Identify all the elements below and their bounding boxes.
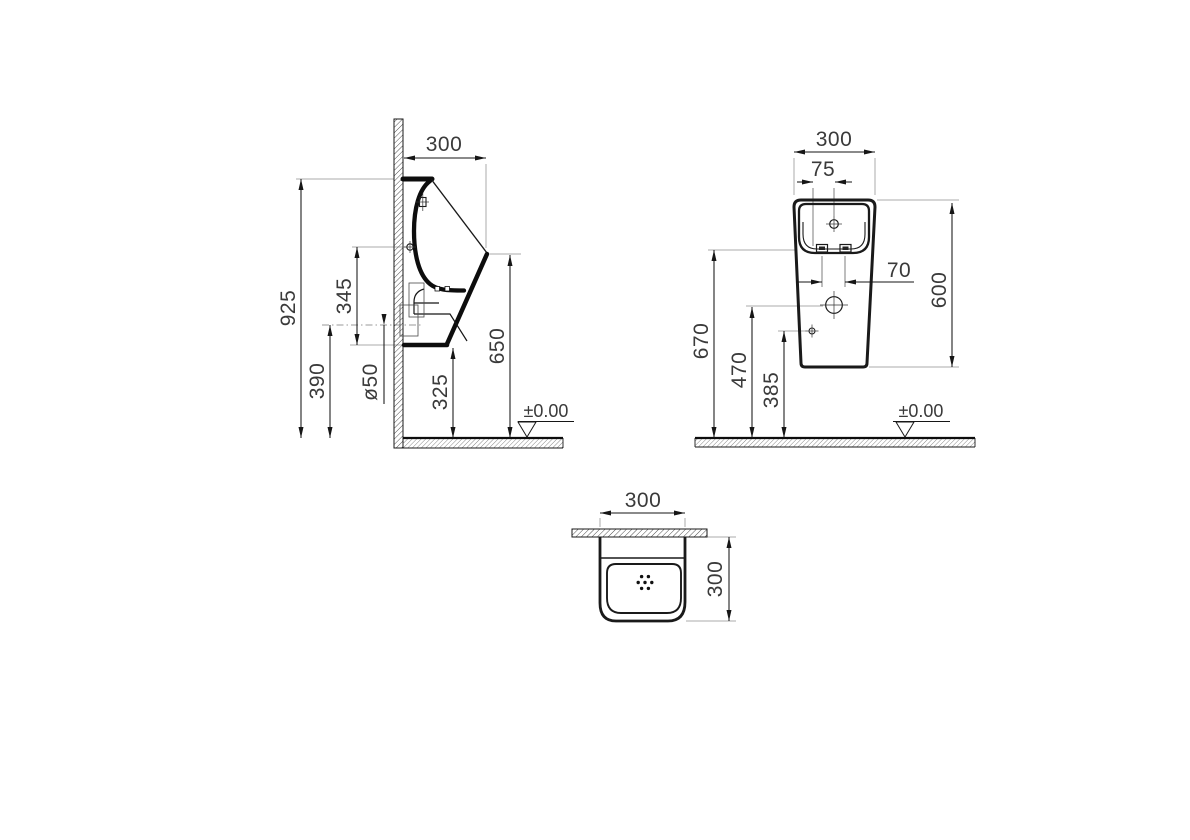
dim-spout-height: 650 xyxy=(486,255,513,438)
datum-level-label: ±0.00 xyxy=(524,401,569,421)
dim-plan-depth: 300 xyxy=(704,537,732,621)
plan-body-outline xyxy=(600,537,685,621)
datum-level-icon xyxy=(896,422,914,437)
wall-section xyxy=(572,529,707,537)
dim-label-front-width: 300 xyxy=(816,128,853,151)
dim-side-depth: 300 xyxy=(404,133,486,161)
dim-label-fixing-height: 670 xyxy=(690,323,713,360)
dim-label-outlet-diameter: ø50 xyxy=(359,363,382,401)
dim-front-width: 300 xyxy=(794,128,875,155)
dim-label-spout-height: 650 xyxy=(486,328,509,365)
urinal-plan-outline xyxy=(600,537,685,621)
lower-front-section xyxy=(447,254,487,344)
drain-crosshair-icon xyxy=(820,291,848,319)
dim-outlet-diameter: ø50 xyxy=(359,314,387,404)
inlet-crosshair-icon xyxy=(826,216,842,232)
floor-section xyxy=(403,438,563,448)
dim-label-fixing-spacing: 70 xyxy=(887,259,911,282)
spreader-hole xyxy=(445,287,450,292)
wall-section xyxy=(394,119,403,448)
dim-body-height: 600 xyxy=(928,203,955,367)
top-view: 300 300 xyxy=(572,489,736,621)
fixing-hole-left xyxy=(817,245,828,253)
dim-plan-width: 300 xyxy=(600,489,685,516)
front-view: 300 75 70 600 670 xyxy=(690,128,975,447)
dim-label-overall-height: 925 xyxy=(277,290,300,327)
side-view: 300 925 345 390 ø50 xyxy=(277,119,574,448)
dim-label-plan-width: 300 xyxy=(625,489,662,512)
dim-label-side-depth: 300 xyxy=(426,133,463,156)
dim-overall-height: 925 xyxy=(277,179,304,438)
dim-fixing-height: 670 xyxy=(690,250,717,438)
dim-label-side-fixing-height: 385 xyxy=(760,372,783,409)
fixing-hole-right xyxy=(840,245,851,253)
dim-label-body-height: 600 xyxy=(928,272,951,309)
dim-inlet-span: 345 xyxy=(333,247,360,345)
urinal-installation-drawing: 300 925 345 390 ø50 xyxy=(0,0,1190,840)
datum-level-front: ±0.00 xyxy=(893,401,950,437)
dim-side-fixing-height: 385 xyxy=(760,331,787,438)
dim-drain-height: 470 xyxy=(728,307,755,438)
dim-outlet-height: 390 xyxy=(306,325,333,438)
body-outline xyxy=(794,200,875,367)
datum-level-label: ±0.00 xyxy=(899,401,944,421)
datum-level-side: ±0.00 xyxy=(518,401,574,437)
urinal-section-profile xyxy=(400,179,487,345)
front-edge-line xyxy=(431,179,487,253)
technical-drawing-canvas: 300 925 345 390 ø50 xyxy=(0,0,1190,840)
floor-section xyxy=(695,438,975,447)
dim-label-outlet-height: 390 xyxy=(306,363,329,400)
spreader-hole xyxy=(435,287,440,292)
dim-label-drain-height: 470 xyxy=(728,352,751,389)
drain-holes-icon xyxy=(637,575,654,590)
plan-bowl-line xyxy=(607,564,681,613)
urinal-front-outline xyxy=(794,200,875,367)
dim-label-inlet-offset: 75 xyxy=(811,158,835,181)
concealed-outlet-box xyxy=(409,283,424,317)
dim-label-plan-depth: 300 xyxy=(704,561,727,598)
dim-label-inlet-span: 345 xyxy=(333,278,356,315)
dim-inlet-offset: 75 xyxy=(797,158,852,185)
dim-bottom-clearance: 325 xyxy=(429,348,456,438)
dim-label-bottom-clearance: 325 xyxy=(429,374,452,411)
side-fixing-crosshair-icon xyxy=(806,325,819,338)
datum-level-icon xyxy=(518,422,536,437)
dim-fixing-spacing: 70 xyxy=(796,259,914,285)
